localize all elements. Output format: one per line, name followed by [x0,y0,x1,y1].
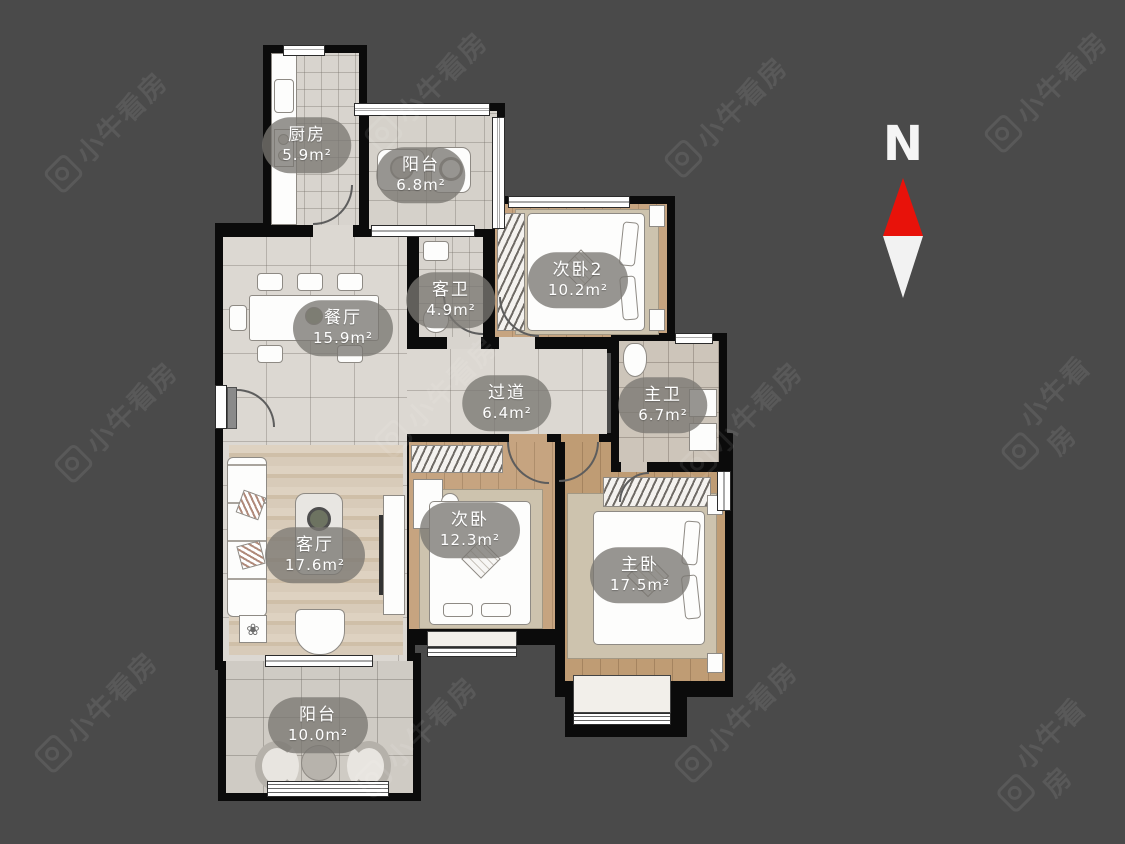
room-name: 客卫 [426,279,475,301]
watermark: 小牛看房 [29,641,165,777]
dining-chair [297,273,323,291]
niu-logo-icon [32,732,74,774]
watermark: 小牛看房 [978,677,1125,831]
watermark: 小牛看房 [49,351,185,487]
master-window [717,471,731,511]
room-name: 阳台 [288,704,348,726]
bedroom-door-gap [509,434,547,442]
kitchen-sink [274,79,294,113]
tv-console [383,495,405,615]
bedroom-window-sill [427,631,517,647]
room-label-dining: 餐厅 15.9m² [293,300,393,356]
bedroom-window [427,647,517,657]
room-label-living: 客厅 17.6m² [265,527,365,583]
sofa [227,457,267,617]
watermark-text: 小牛看房 [1006,21,1116,131]
lounge-chair [295,609,345,655]
room-label-bedroom2: 次卧2 10.2m² [528,252,628,308]
dining-chair [337,273,363,291]
room-name: 阳台 [396,154,445,176]
guest-bath-sink [423,241,449,261]
baywindow-sill [573,675,671,713]
room-name: 主卧 [610,554,670,576]
room-name: 厨房 [282,124,331,146]
north-label: N [868,120,938,168]
compass-arrow-north [883,178,923,236]
watermark-text: 小牛看房 [76,351,186,461]
niu-logo-icon [42,152,84,194]
dining-chair [257,273,283,291]
room-label-kitchen: 厨房 5.9m² [262,117,351,173]
room-label-balcony-top: 阳台 6.8m² [376,147,465,203]
room-area: 5.9m² [282,146,331,166]
kitchen-door-gap [313,225,353,237]
bedroom-pillow [481,603,511,617]
entrance-door-leaf [227,387,237,429]
room-area: 17.6m² [285,556,345,576]
room-area: 6.7m² [638,406,687,426]
north-compass: N [868,120,938,310]
watermark: 小牛看房 [979,21,1115,157]
room-label-master: 主卧 17.5m² [590,547,690,603]
room-label-hallway: 过道 6.4m² [462,375,551,431]
watermark: 小牛看房 [39,61,175,197]
bedroom2-nightstand [649,205,665,227]
dining-chair [229,305,247,331]
bedroom2-door-gap [499,337,535,349]
room-area: 17.5m² [610,576,670,596]
room-name: 餐厅 [313,307,373,329]
room-name: 过道 [482,382,531,404]
niu-logo-icon [982,112,1024,154]
bedroom2-nightstand [649,309,665,331]
bedroom-pillow [443,603,473,617]
room-area: 6.8m² [396,176,445,196]
balcony-top-window-side [492,117,505,229]
watermark-text: 小牛看房 [56,641,166,751]
baywindow [573,713,671,725]
master-door-gap [561,434,599,442]
plant-stand: ❀ [239,615,267,643]
master-bath-toilet [623,343,647,377]
room-label-bedroom: 次卧 12.3m² [420,502,520,558]
room-area: 10.2m² [548,281,608,301]
niu-logo-icon [52,442,94,484]
room-area: 6.4m² [482,404,531,424]
kitchen-window [283,45,325,56]
room-area: 10.0m² [288,726,348,746]
master-bath-window [675,333,713,344]
dining-balcony-slider [371,225,475,237]
room-label-master-bath: 主卫 6.7m² [618,377,707,433]
niu-logo-icon [995,772,1037,814]
watermark-text: 小牛看房 [66,61,176,171]
master-nightstand [707,653,723,673]
compass-arrow-south [883,236,923,298]
floorplan-page: { "background": "#4a4a4a", "watermark": … [0,0,1125,844]
entrance-opening [215,385,227,429]
room-name: 主卫 [638,384,687,406]
niu-logo-icon [999,430,1041,472]
room-area: 4.9m² [426,301,475,321]
room-name: 客厅 [285,534,345,556]
room-name: 次卧 [440,509,500,531]
watermark: 小牛看房 [982,339,1125,490]
room-name: 次卧2 [548,259,608,281]
room-area: 12.3m² [440,531,500,551]
room-label-guest-bath: 客卫 4.9m² [406,272,495,328]
room-label-balcony-bottom: 阳台 10.0m² [268,697,368,753]
bedroom-wardrobe [411,445,503,473]
bedroom2-window [508,196,630,208]
tv [379,515,383,595]
dining-chair [257,345,283,363]
room-area: 15.9m² [313,329,373,349]
master-bath-door-gap [621,462,647,472]
living-balcony-slider [265,655,373,667]
